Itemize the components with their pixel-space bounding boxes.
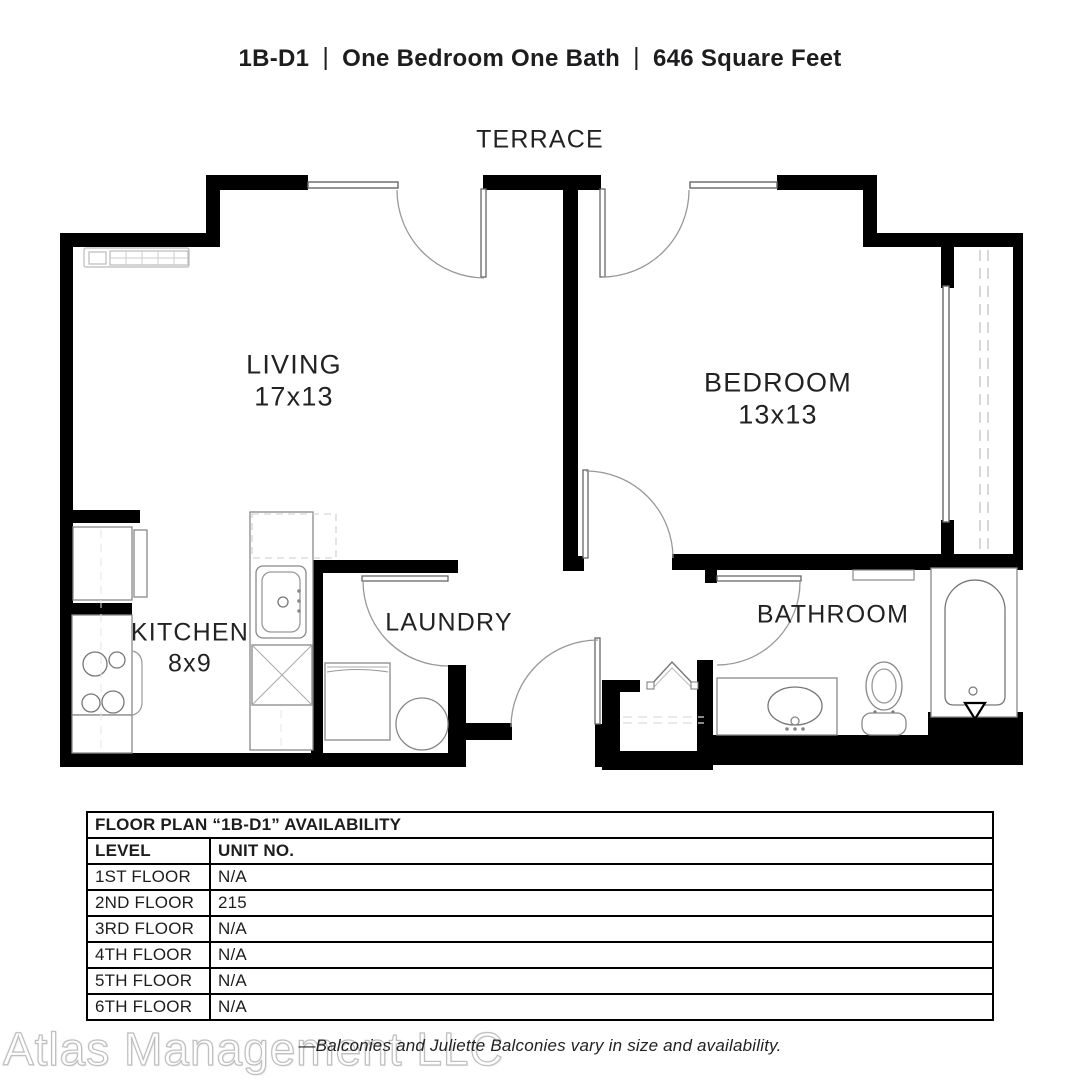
unit-cell: N/A bbox=[210, 942, 993, 968]
unit-cell: N/A bbox=[210, 994, 993, 1020]
room-label-laundry: LAUNDRY bbox=[385, 609, 512, 638]
table-row: 5TH FLOOR N/A bbox=[87, 968, 993, 994]
bedroom-door-leaf bbox=[583, 470, 588, 558]
kitchen-sink bbox=[256, 566, 306, 638]
entry-closet bbox=[623, 662, 704, 723]
disclaimer-note: —Balconies and Juliette Balconies vary i… bbox=[0, 1036, 1080, 1056]
floor-plan-drawing bbox=[0, 0, 1080, 800]
living-terrace-door-swing bbox=[397, 190, 484, 278]
level-cell: 4TH FLOOR bbox=[87, 942, 210, 968]
bathtub bbox=[931, 568, 1017, 719]
bedroom-terrace-door-leaf bbox=[600, 189, 605, 277]
unit-cell: N/A bbox=[210, 916, 993, 942]
table-row: 4TH FLOOR N/A bbox=[87, 942, 993, 968]
dishwasher bbox=[252, 645, 312, 705]
room-label-bedroom: BEDROOM bbox=[704, 368, 852, 399]
unit-cell: 215 bbox=[210, 890, 993, 916]
laundry-door-leaf bbox=[362, 576, 448, 581]
room-label-kitchen: KITCHEN bbox=[131, 619, 249, 648]
room-dims-living: 17x13 bbox=[254, 382, 334, 413]
unit-cell: N/A bbox=[210, 864, 993, 890]
doors bbox=[362, 189, 801, 727]
col-header-unit: UNIT NO. bbox=[210, 838, 993, 864]
vanity-sink bbox=[717, 678, 837, 735]
table-title: FLOOR PLAN “1B-D1” AVAILABILITY bbox=[87, 812, 993, 838]
level-cell: 2ND FLOOR bbox=[87, 890, 210, 916]
entry-door-leaf bbox=[595, 638, 600, 724]
table-row: 6TH FLOOR N/A bbox=[87, 994, 993, 1020]
room-dims-bedroom: 13x13 bbox=[738, 400, 818, 431]
table-row: 1ST FLOOR N/A bbox=[87, 864, 993, 890]
table-row: 2ND FLOOR 215 bbox=[87, 890, 993, 916]
room-label-living: LIVING bbox=[246, 350, 342, 381]
bedroom-terrace-door-swing bbox=[602, 190, 689, 277]
room-label-bathroom: BATHROOM bbox=[757, 601, 909, 630]
table-row: 3RD FLOOR N/A bbox=[87, 916, 993, 942]
table-header-row: LEVEL UNIT NO. bbox=[87, 838, 993, 864]
wall-niche bbox=[853, 570, 914, 580]
table-title-row: FLOOR PLAN “1B-D1” AVAILABILITY bbox=[87, 812, 993, 838]
bedroom-door-swing bbox=[586, 471, 673, 558]
closet-shelf-dashes bbox=[623, 717, 704, 723]
kitchen-island bbox=[250, 512, 336, 750]
level-cell: 1ST FLOOR bbox=[87, 864, 210, 890]
availability-table: FLOOR PLAN “1B-D1” AVAILABILITY LEVEL UN… bbox=[86, 811, 994, 1021]
room-label-terrace: TERRACE bbox=[476, 126, 604, 155]
room-dims-kitchen: 8x9 bbox=[168, 650, 212, 679]
bathroom-door-leaf bbox=[717, 576, 801, 581]
living-terrace-door-leaf bbox=[481, 189, 486, 277]
toilet bbox=[862, 662, 906, 735]
bedroom-window bbox=[943, 286, 949, 522]
entry-door-swing bbox=[511, 640, 598, 727]
washer bbox=[325, 663, 390, 740]
col-header-level: LEVEL bbox=[87, 838, 210, 864]
unit-cell: N/A bbox=[210, 968, 993, 994]
level-cell: 6TH FLOOR bbox=[87, 994, 210, 1020]
level-cell: 5TH FLOOR bbox=[87, 968, 210, 994]
floor-plan-flyer: 1B-D1 | One Bedroom One Bath | 646 Squar… bbox=[0, 0, 1080, 1080]
water-heater bbox=[396, 698, 448, 750]
terrace-window-living bbox=[308, 182, 398, 188]
baseboard-heater bbox=[84, 248, 189, 267]
refrigerator bbox=[73, 527, 147, 600]
juliette-balcony-dashes bbox=[980, 250, 988, 556]
terrace-window-bedroom bbox=[690, 182, 777, 188]
level-cell: 3RD FLOOR bbox=[87, 916, 210, 942]
oven-handle bbox=[133, 651, 142, 715]
